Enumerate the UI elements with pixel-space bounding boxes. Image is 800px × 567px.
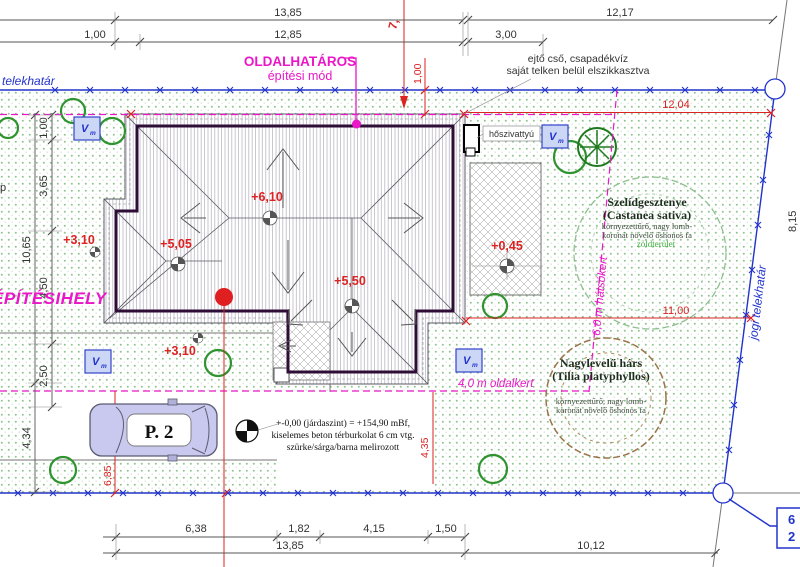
dim-label: 2,50 xyxy=(38,365,50,386)
dim-label: 3,65 xyxy=(38,175,50,196)
dim-label: 10,12 xyxy=(577,540,605,552)
dim-label-red: 11,00 xyxy=(663,305,690,317)
dim-label: 1,00 xyxy=(84,29,105,41)
dim-label: 10,65 xyxy=(21,236,33,264)
level-label: +3,10 xyxy=(164,344,196,358)
linden-desc2: koronát növelő őshonos fa xyxy=(556,405,646,415)
site-plan-page: hőszivattyú xyxy=(0,0,800,567)
dim-label-red: 6,85 xyxy=(102,465,114,486)
heat-pump-label: hőszivattyú xyxy=(489,129,534,139)
dim-label: 4,15 xyxy=(363,523,384,535)
level-label: +0,45 xyxy=(491,239,523,253)
side-setback-label: 4,0 m oldalkert xyxy=(458,378,534,390)
boundary-extension xyxy=(776,0,787,79)
car-mirror xyxy=(168,455,177,461)
chestnut-tag: zöldterület xyxy=(637,239,676,249)
linden-name: Nagylevelű hárs xyxy=(560,356,643,370)
svg-text:m: m xyxy=(558,138,564,145)
dim-label: 13,85 xyxy=(276,540,304,552)
pavement-note-line3: szürke/sárga/barna melirozott xyxy=(287,443,400,453)
walk-area xyxy=(277,459,433,491)
chestnut-name: Szelídgesztenye xyxy=(607,195,687,209)
parked-car: P. 2 xyxy=(90,399,217,461)
drain-note-line1: ejtő cső, csapadékvíz xyxy=(528,53,628,65)
dim-label-red: 4,35 xyxy=(419,437,431,458)
building-mode-line2: építési mód xyxy=(268,69,333,83)
dim-label: 1,50 xyxy=(435,523,456,535)
dim-label-red: 1,00 xyxy=(412,63,424,84)
boundary-extension xyxy=(713,503,722,567)
pavement-note-line1: +-0,00 (járdaszint) = +154,90 mBf, xyxy=(276,418,410,429)
car-mirror xyxy=(168,399,177,405)
dim-label: 3,00 xyxy=(495,29,516,41)
svg-text:m: m xyxy=(90,130,96,137)
level-label: +3,10 xyxy=(63,233,95,247)
dim-label: 12,17 xyxy=(606,7,634,19)
svg-text:m: m xyxy=(101,363,107,370)
parking-label: P. 2 xyxy=(145,422,174,443)
dim-label-red: 12,04 xyxy=(662,99,690,111)
boundary-corner-marker xyxy=(765,79,785,99)
parcel-number-line1: 6 xyxy=(788,512,795,527)
level-label: +5,05 xyxy=(160,237,192,251)
building-mode-point xyxy=(352,120,361,129)
heat-pump-base xyxy=(466,148,475,156)
site-plan-drawing: hőszivattyú xyxy=(0,0,800,567)
partial-left-text: p xyxy=(0,182,6,194)
dim-label: 1,00 xyxy=(38,117,50,138)
building-site-label: ÉPÍTÉSIHELY xyxy=(0,289,108,308)
chestnut-latin: (Castanea sativa) xyxy=(603,208,691,222)
dim-label: 12,85 xyxy=(274,29,302,41)
front-boundary-label: telekhatár xyxy=(2,74,56,88)
dim-label: 13,85 xyxy=(274,7,302,19)
dim-label: 6,38 xyxy=(185,523,206,535)
linden-latin: (Tilia platyphyllos) xyxy=(552,369,649,383)
parcel-leader xyxy=(729,499,777,526)
level-label: +5,50 xyxy=(334,274,366,288)
dimensions-top: 13,85 1,00 12,85 12,17 3,00 xyxy=(0,7,777,56)
drain-note-line2: saját telken belül elszikkasztva xyxy=(507,65,650,77)
building-mode-line1: OLDALHATÁROS xyxy=(244,54,356,69)
pavement-note-line2: kiselemes beton térburkolat 6 cm vtg. xyxy=(272,431,415,441)
dim-label: 8,15 xyxy=(787,211,799,232)
level-label: +6,10 xyxy=(251,190,283,204)
dim-label: 1,82 xyxy=(288,523,309,535)
dim-label: 4,34 xyxy=(21,427,33,448)
parcel-number-line2: 2 xyxy=(788,529,795,544)
dimensions-bottom: 6,38 1,82 4,15 1,50 13,85 10,12 xyxy=(103,523,720,560)
terrace-paving xyxy=(470,163,541,295)
red-point-marker xyxy=(215,288,233,306)
dim-label-red: 7, xyxy=(385,17,401,30)
svg-text:m: m xyxy=(472,362,478,369)
